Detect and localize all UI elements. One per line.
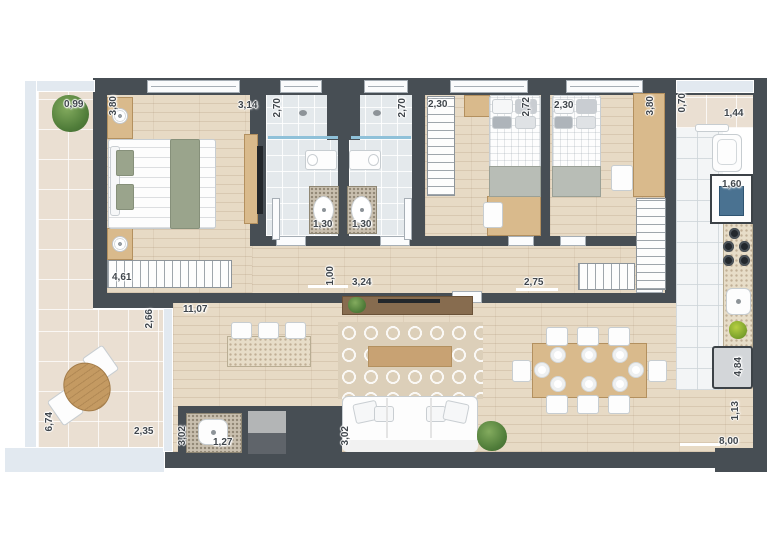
blanket-bedroom3 [552,166,601,197]
coffee-table [368,346,452,367]
pillow-bedroom3-3 [554,116,573,129]
dining-chair-bottom-3 [608,395,630,414]
wall-terrace [93,293,173,308]
dim-closet-hall: 2,30 [428,99,447,110]
door-sill-bath1 [276,236,306,246]
breakfast-bar [227,336,311,367]
dim-bedroom1-width: 3,14 [238,100,257,111]
dim-kitchen-end: 1,13 [730,401,741,420]
dim-bedroom2-depth: 2,72 [521,97,532,116]
window-bath1 [280,80,322,93]
dimension-line-bottom [680,443,720,446]
wall-bedroom2-bedroom3 [541,88,550,243]
plate-1 [550,347,566,363]
wardrobe-bedroom3-horizontal [578,263,635,290]
plant-kitchen [729,321,747,339]
kitchen-sink-drain [736,299,741,304]
plant-sofa [477,421,507,451]
plate-5 [581,376,597,392]
plate-3 [612,347,628,363]
dim-sofa-run: 3,02 [340,426,351,445]
dim-laundry-width: 1,44 [724,108,743,119]
door-sill-bedroom2 [508,236,534,246]
pillow-bedroom3-4 [576,116,596,129]
glass-terrace-bottom [4,447,165,473]
plate-8 [628,362,644,378]
sink-drain-bath1 [322,208,326,212]
dim-lavabo-depth: 3,02 [177,426,188,445]
door-sill-bedroom3 [560,236,586,246]
plant-console [348,297,366,313]
glass-laundry [676,80,754,93]
bed-master-pillow-1 [116,150,134,176]
bar-stool-2 [258,322,279,339]
dim-kitchen-run: 4,84 [733,357,744,376]
window-bedroom1 [147,80,240,93]
sofa-seam-2 [430,398,432,438]
door-leaf-bath1 [272,198,280,240]
dim-bedroom3-width: 2,30 [554,100,573,111]
plate-4 [550,376,566,392]
dim-terrace-door: 2,66 [144,309,155,328]
washing-machine-door [719,186,744,216]
sofa-pillow-2 [374,406,394,422]
glass-terrace-door [163,308,173,452]
lavabo-sink-drain [211,430,216,435]
dim-bath1-depth: 2,70 [272,98,283,117]
dim-bath2-depth: 2,70 [397,98,408,117]
dim-living-run: 11,07 [183,304,207,315]
dining-chair-bottom-2 [577,395,599,414]
bar-stool-1 [231,322,252,339]
wall-bottom [140,452,756,468]
pillow-bedroom2-3 [492,116,512,129]
laundry-rack [695,124,729,132]
window-bath2 [364,80,408,93]
plate-7 [534,362,550,378]
bar-stool-3 [285,322,306,339]
toilet-bowl-bath2 [368,154,379,166]
shelf-bedroom2 [464,95,490,117]
dim-laundry-depth: 0,70 [677,93,688,112]
dining-chair-right [648,360,667,382]
wall-bath-bottom [250,236,676,246]
sink-drain-bath2 [360,208,364,212]
tv-bedroom1 [257,146,263,214]
wardrobe-bedroom3-vertical [636,198,666,290]
dim-balcony-width: 0,99 [64,99,83,110]
stove-burner-2 [723,241,734,252]
pillow-bedroom2-4 [515,116,536,129]
tv-panel-bedroom1 [244,134,258,224]
pillow-bedroom2-1 [492,99,513,114]
wall-bedroom3-kitchen [665,78,676,296]
wall-right [753,78,767,468]
dining-chair-top-2 [577,327,599,346]
dim-bath2-width: 1,30 [352,219,371,230]
stove-burner-1 [729,228,740,239]
floor-plan: 0,99 3,80 3,14 2,70 1,30 2,70 1,30 2,30 … [0,0,768,538]
stove-burner-5 [739,255,750,266]
dim-terrace-width: 2,35 [134,426,153,437]
window-bedroom3 [566,80,643,93]
tub-faucet-bath1 [299,110,307,116]
wall-bottom-step [715,448,767,472]
dining-chair-left [512,360,531,382]
dim-hall-width: 1,00 [325,266,336,285]
dim-bedroom3-depth: 3,80 [645,96,656,115]
wall-left [93,78,107,295]
dim-lavabo-sink: 1,27 [213,437,232,448]
tub-faucet-bath2 [373,110,381,116]
dining-chair-top-3 [608,327,630,346]
door-leaf-bath2 [404,198,412,240]
dim-wardrobe-run: 4,61 [112,272,131,283]
toilet-bowl-bath1 [307,154,318,166]
dining-chair-bottom-1 [546,395,568,414]
dim-suite-opening: 2,75 [524,277,543,288]
wall-bath2-bedroom2 [412,95,425,243]
glass-balcony-left [24,80,37,452]
dim-hall-run: 3,24 [352,277,371,288]
dim-bath1-width: 1,30 [313,219,332,230]
dimension-line-suite [516,288,558,291]
plate-2 [581,347,597,363]
dim-living-width: 8,00 [719,436,738,447]
lamp-bottom [112,236,128,252]
laundry-tub-basin [717,139,737,165]
shower-tray-bottom [248,433,286,454]
shower-tray-top [248,411,286,433]
stove-burner-3 [739,241,750,252]
window-bedroom2 [450,80,528,93]
chair-bedroom3 [611,165,633,191]
sofa-seam-1 [386,398,388,438]
dim-washer: 1,60 [722,179,741,190]
closet-bedroom2 [427,96,455,196]
pillow-bedroom3-2 [576,99,597,114]
plate-6 [612,376,628,392]
shower-glass-bath1 [268,136,338,139]
dim-bedroom1-depth: 3,80 [108,96,119,115]
bed-master-runner [170,139,200,229]
bed-master-pillow-2 [116,184,134,210]
dining-chair-top-1 [546,327,568,346]
tv-living [378,299,440,303]
chair-bedroom2 [483,202,503,228]
sofa-back [342,440,478,452]
dim-terrace-length: 6,74 [44,412,55,431]
shower-glass-bath2 [351,136,411,139]
blanket-bedroom2 [489,166,541,197]
stove-burner-4 [723,255,734,266]
